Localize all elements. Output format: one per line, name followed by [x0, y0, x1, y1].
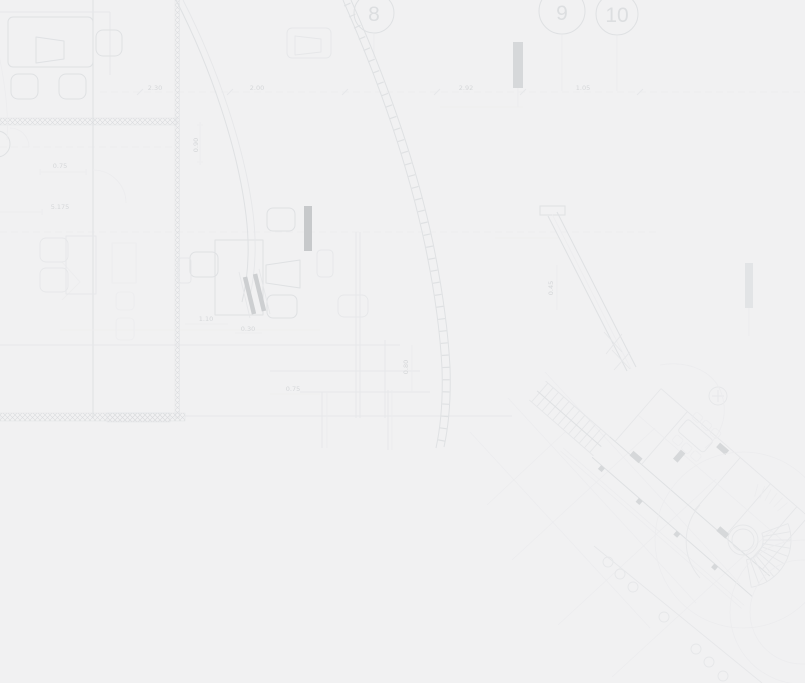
grid-bubble-left-edge — [0, 131, 10, 157]
hatched-wall-vertical — [175, 0, 180, 418]
hatched-wall-horizontal-1 — [0, 118, 177, 125]
chair — [116, 292, 134, 310]
dimension-label: 0.80 — [402, 360, 410, 374]
column-marker-mid — [513, 42, 523, 88]
floor-plan-drawing: 8 9 10 — [0, 0, 805, 683]
grid-bubble-10-label: 10 — [605, 4, 628, 27]
chair — [40, 268, 68, 292]
chair — [96, 30, 122, 56]
door-marker — [630, 451, 643, 463]
office-chair — [295, 36, 321, 55]
chair — [338, 295, 368, 317]
chair — [116, 318, 134, 340]
dimension-label: 0.90 — [192, 138, 200, 152]
dimension-label: 5.175 — [51, 203, 70, 211]
column — [711, 564, 718, 571]
office-chair — [36, 37, 64, 63]
door-marker — [673, 450, 685, 463]
dimension-label: 0.45 — [547, 281, 555, 295]
dimension-label: 0.30 — [241, 325, 255, 333]
dimension-lines — [0, 122, 557, 394]
fan-stair-upper — [755, 484, 788, 511]
column — [673, 531, 680, 538]
chair — [178, 258, 191, 283]
column-markers — [304, 42, 753, 308]
desk — [66, 236, 96, 294]
column — [636, 498, 643, 505]
grid-bubble-10: 10 — [596, 0, 638, 35]
dimension-label: 2.92 — [459, 84, 473, 92]
dimension-label: 2.30 — [148, 84, 162, 92]
atrium — [655, 452, 805, 683]
grid-bubbles: 8 9 10 — [0, 0, 638, 157]
dimension-label: 0.75 — [53, 162, 67, 170]
curved-ramp-outer — [343, 0, 450, 448]
landscape — [660, 364, 727, 448]
dimension-labels: 2.30 2.00 2.92 1.05 0.75 5.175 0.90 1.10… — [51, 84, 591, 393]
building-wing — [517, 324, 805, 609]
grid-bubble-9-label: 9 — [556, 2, 568, 25]
dimension-label: 2.00 — [250, 84, 264, 92]
desk — [8, 17, 93, 67]
cabinet — [112, 243, 136, 283]
chair — [40, 238, 68, 262]
chair — [267, 208, 295, 231]
column-marker-light — [745, 263, 753, 308]
staircase — [529, 381, 610, 456]
furniture — [8, 17, 368, 340]
blueprint-watermark-page: 8 9 10 — [0, 0, 805, 683]
column-marker-dark — [304, 206, 312, 251]
chair — [267, 295, 297, 318]
grid-bubble-8: 8 — [354, 0, 394, 33]
chair — [190, 252, 218, 277]
column — [598, 465, 605, 472]
chair — [11, 74, 38, 99]
outer-arc-2 — [750, 560, 805, 664]
dimension-label: 0.75 — [286, 385, 300, 393]
wing-grid-line — [594, 546, 762, 683]
site-grid-diagonals — [470, 372, 772, 677]
office-chair — [266, 260, 300, 288]
hatched-wall-horizontal-3 — [107, 413, 170, 422]
chair — [59, 74, 86, 99]
dimension-label: 1.05 — [576, 84, 590, 92]
door-marker — [716, 526, 729, 538]
dimension-label: 1.10 — [199, 315, 213, 323]
grid-bubble-9: 9 — [539, 0, 585, 34]
chair — [317, 250, 333, 277]
grid-bubble-8-label: 8 — [368, 3, 380, 26]
